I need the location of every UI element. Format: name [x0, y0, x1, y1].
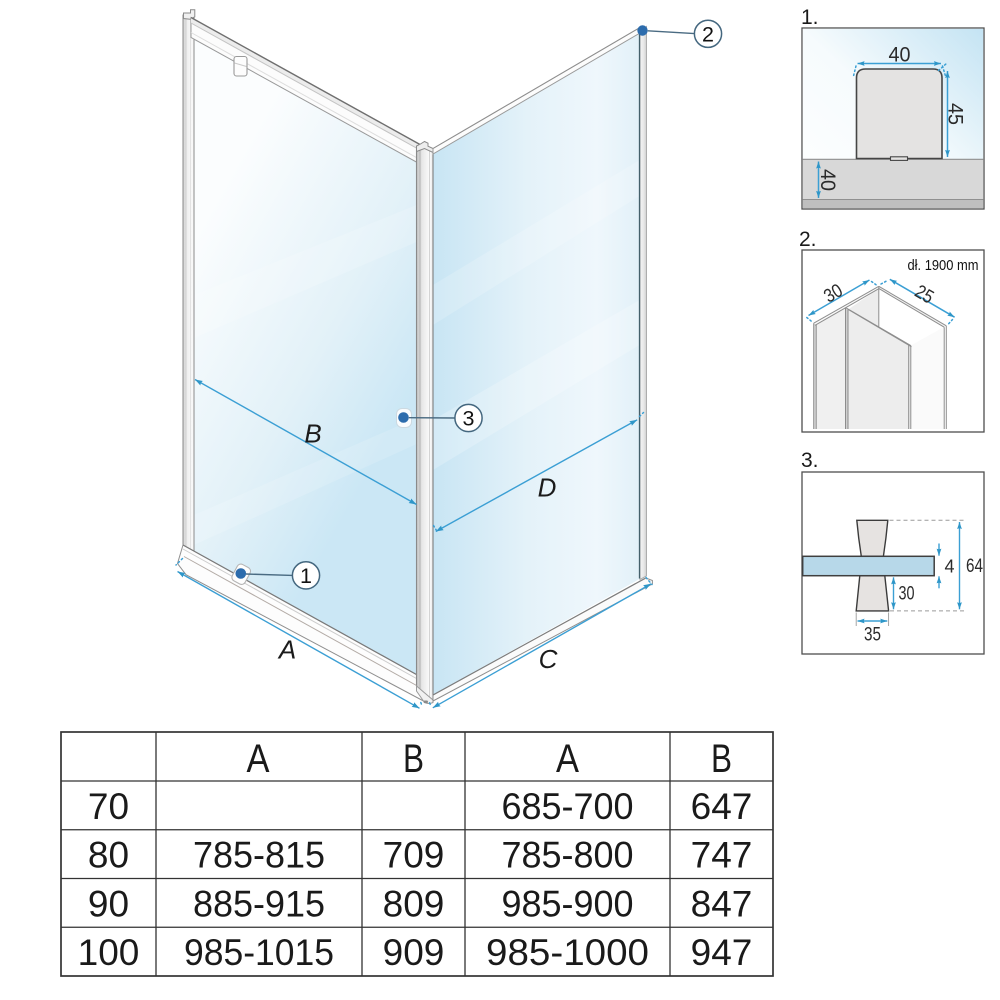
svg-text:80: 80 — [88, 835, 129, 876]
svg-text:100: 100 — [78, 932, 140, 973]
svg-text:A: A — [277, 635, 296, 665]
svg-text:985-900: 985-900 — [502, 883, 634, 924]
svg-text:70: 70 — [88, 786, 129, 827]
svg-text:847: 847 — [691, 883, 753, 924]
svg-text:885-915: 885-915 — [193, 883, 325, 924]
svg-text:1: 1 — [300, 564, 312, 588]
svg-text:2.: 2. — [799, 228, 817, 251]
svg-text:A: A — [556, 737, 579, 781]
svg-text:4: 4 — [945, 557, 955, 577]
svg-text:785-800: 785-800 — [502, 835, 634, 876]
svg-text:1.: 1. — [801, 6, 819, 29]
svg-text:2: 2 — [702, 23, 714, 47]
svg-text:B: B — [304, 419, 321, 449]
svg-text:B: B — [403, 737, 424, 781]
svg-text:785-815: 785-815 — [193, 835, 325, 876]
svg-text:40: 40 — [816, 169, 840, 191]
svg-text:dł. 1900 mm: dł. 1900 mm — [908, 257, 979, 274]
svg-text:747: 747 — [691, 835, 753, 876]
svg-text:45: 45 — [944, 103, 968, 125]
svg-text:40: 40 — [889, 43, 911, 67]
svg-text:90: 90 — [88, 883, 129, 924]
svg-text:985-1015: 985-1015 — [184, 932, 334, 973]
svg-text:C: C — [539, 644, 558, 674]
svg-text:35: 35 — [864, 625, 881, 646]
svg-text:947: 947 — [691, 932, 753, 973]
svg-text:909: 909 — [383, 932, 445, 973]
svg-text:709: 709 — [383, 835, 445, 876]
svg-text:B: B — [711, 737, 732, 781]
svg-text:64: 64 — [966, 555, 983, 577]
svg-text:809: 809 — [383, 883, 445, 924]
svg-text:985-1000: 985-1000 — [486, 932, 649, 973]
svg-text:30: 30 — [899, 584, 915, 605]
svg-text:685-700: 685-700 — [502, 786, 634, 827]
svg-text:3: 3 — [463, 407, 475, 431]
svg-text:D: D — [538, 473, 557, 503]
svg-text:A: A — [247, 737, 270, 781]
svg-text:3.: 3. — [801, 449, 819, 472]
svg-text:647: 647 — [691, 786, 753, 827]
